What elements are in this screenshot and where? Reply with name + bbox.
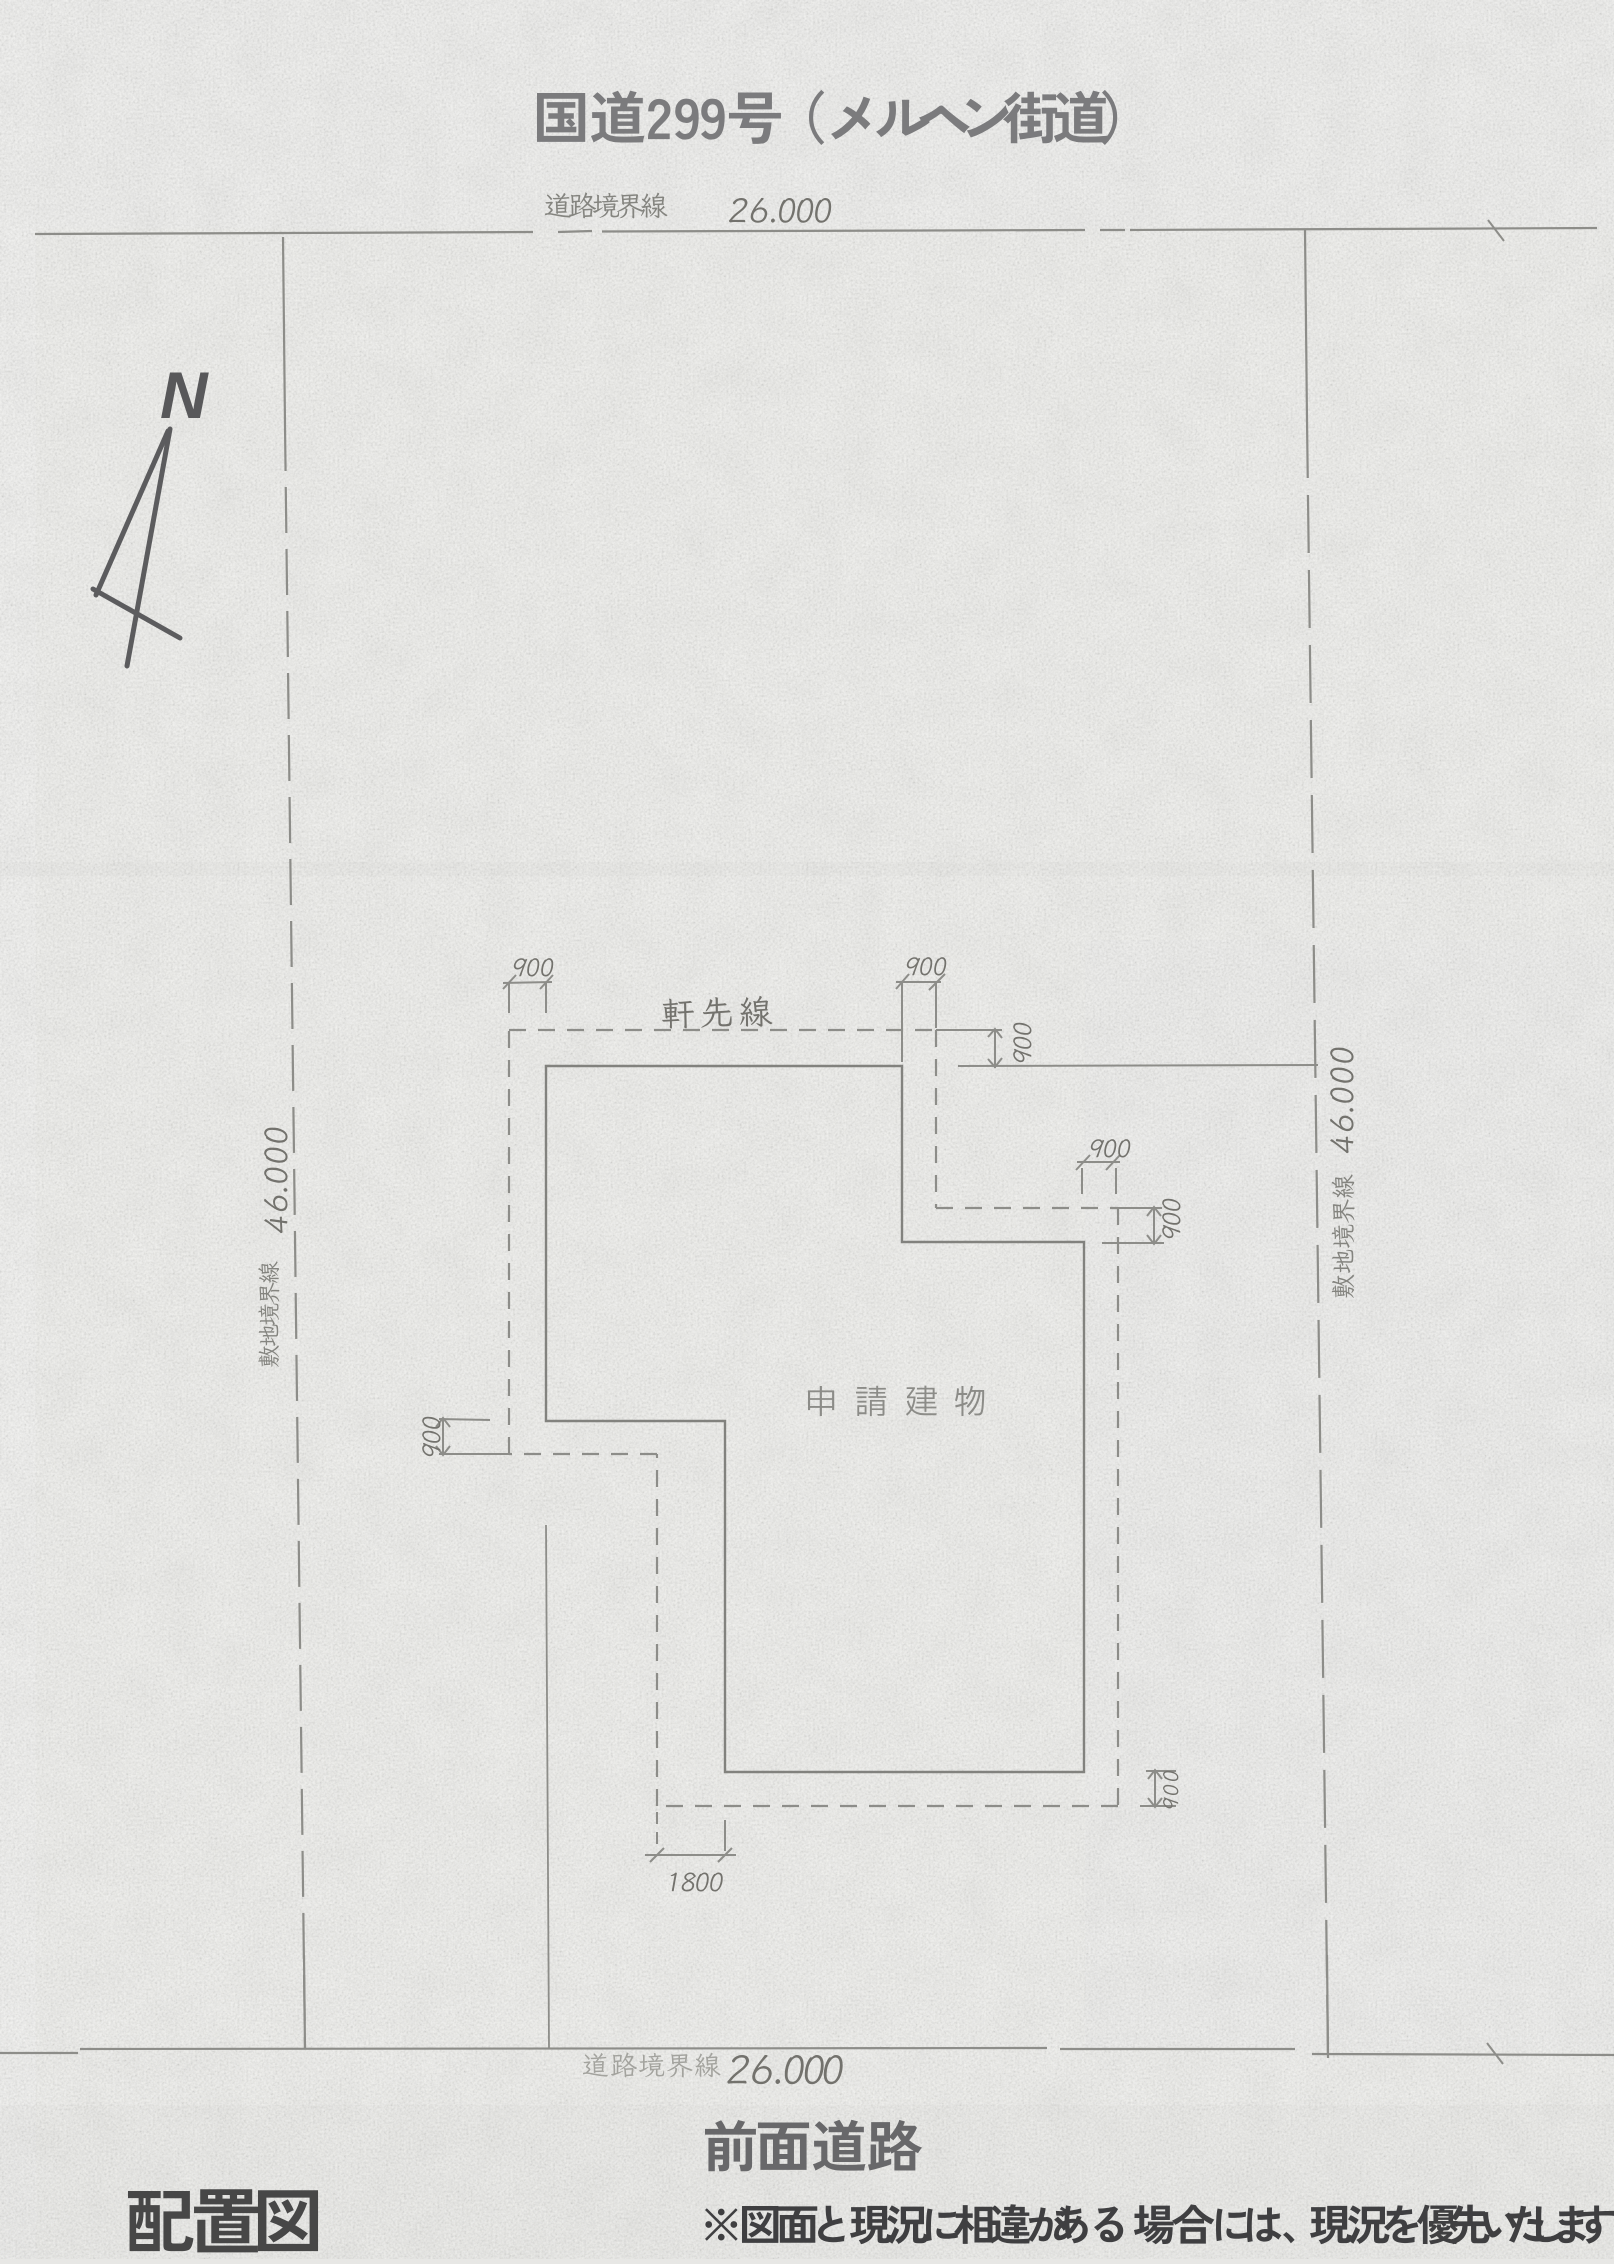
svg-text:N: N — [160, 358, 209, 432]
